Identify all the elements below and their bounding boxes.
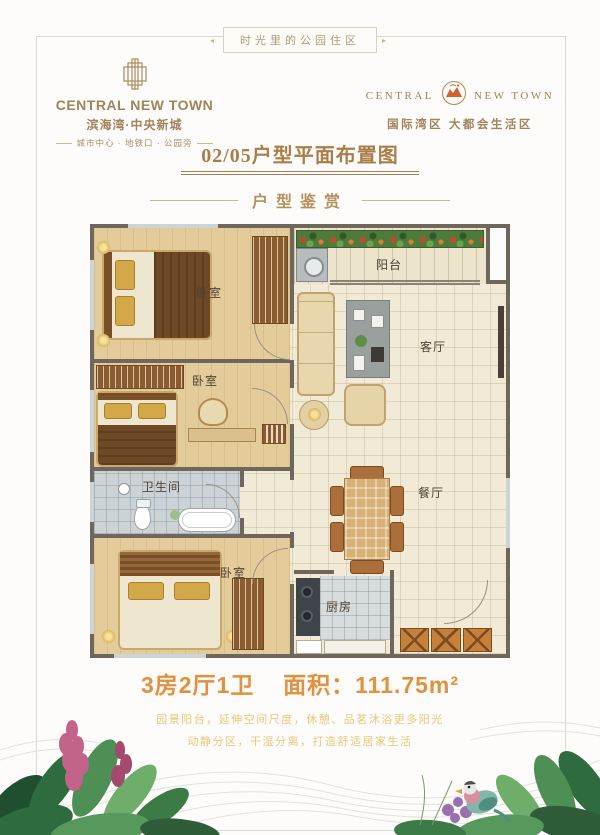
bookshelf <box>262 424 286 444</box>
banner-text: 时光里的公园住区 <box>240 35 360 47</box>
plan-title-block: 02/05户型平面布置图 <box>0 139 600 175</box>
brand-name-en: CENTRAL NEW TOWN <box>52 97 217 113</box>
tv <box>498 306 504 378</box>
plan-notch <box>486 228 506 284</box>
header-line-right <box>362 200 450 201</box>
brand-right-en-left: CENTRAL <box>366 90 434 102</box>
brand-right: CENTRAL NEW TOWN 国际湾区 大都会生活区 <box>365 80 555 132</box>
balcony-plants <box>296 230 484 248</box>
desk-chair <box>198 398 228 426</box>
room-label: 卫生间 <box>142 478 181 495</box>
shoe-cabinet <box>400 628 492 652</box>
brand-right-subtitle: 国际湾区 大都会生活区 <box>365 116 555 132</box>
sliding-door <box>330 280 480 285</box>
dining-chair <box>390 522 404 552</box>
stove <box>296 578 320 636</box>
room-label: 卧室 <box>196 284 222 301</box>
diamond-icon: ▸ <box>382 36 390 45</box>
window <box>114 654 206 658</box>
wall <box>290 584 294 654</box>
floor-plan: 卧室 卧室 卫生间 卧室 阳台 <box>90 224 510 658</box>
coffee-table <box>346 300 390 378</box>
wardrobe <box>96 365 184 389</box>
window <box>90 390 94 452</box>
window <box>128 224 218 228</box>
wardrobe <box>252 236 288 324</box>
wall <box>240 471 244 487</box>
diamond-icon: ◂ <box>210 36 218 45</box>
summary-line: 3房2厅1卫 面积：111.75m² <box>0 666 600 700</box>
brand-left: CENTRAL NEW TOWN 滨海湾·中央新城 城市中心 · 地铁口 · 公… <box>52 58 217 149</box>
wall <box>290 532 294 548</box>
dining-chair <box>330 522 344 552</box>
summary-area-value: 111.75m² <box>355 672 459 698</box>
description-line1: 园景阳台，延伸空间尺度，休憩、品茗沐浴更多阳光 <box>0 711 600 727</box>
wall <box>390 570 394 654</box>
dining-chair <box>390 486 404 516</box>
room-label: 客厅 <box>420 338 446 355</box>
plant-pot <box>170 510 180 520</box>
title-underline <box>181 171 419 175</box>
wall <box>294 570 334 574</box>
wall <box>290 424 294 480</box>
dining-chair <box>330 486 344 516</box>
dining-table <box>344 478 390 560</box>
bed <box>118 550 222 650</box>
room-label: 阳台 <box>376 256 402 273</box>
armchair <box>344 384 386 426</box>
table-lamp <box>308 408 321 421</box>
wall <box>290 360 294 388</box>
room-label: 餐厅 <box>418 484 444 501</box>
description-line2: 动静分区，干湿分离，打造舒适居家生活 <box>0 733 600 749</box>
section-header-text: 户型鉴赏 <box>252 188 348 212</box>
lamp <box>97 334 110 347</box>
lamp <box>97 241 110 254</box>
room-label: 卧室 <box>220 564 246 581</box>
bed <box>96 391 178 467</box>
kitchen-counter <box>324 640 386 654</box>
dining-chair <box>350 560 384 574</box>
plan-title: 02/05户型平面布置图 <box>0 139 600 168</box>
toilet <box>134 504 151 530</box>
summary-spec: 3房2厅1卫 <box>141 672 254 698</box>
brand-name-cn: 滨海湾·中央新城 <box>52 116 217 133</box>
window <box>90 482 94 522</box>
room-label: 卧室 <box>192 372 218 389</box>
kitchen-cabinet <box>296 640 322 654</box>
building-icon <box>52 58 217 95</box>
brand-right-en-right: NEW TOWN <box>474 90 554 102</box>
header-line-left <box>150 200 238 201</box>
wall <box>240 518 244 534</box>
wardrobe <box>232 578 264 650</box>
sofa <box>297 292 335 396</box>
window <box>90 260 94 330</box>
window <box>90 564 94 634</box>
emblem-icon <box>441 80 467 111</box>
section-header: 户型鉴赏 <box>0 188 600 212</box>
lamp <box>102 630 115 643</box>
washing-machine <box>296 248 328 282</box>
desk <box>188 428 256 442</box>
summary-area-label: 面积： <box>283 672 355 698</box>
room-label: 厨房 <box>326 598 352 615</box>
shower-symbol <box>118 483 130 495</box>
window <box>506 478 510 548</box>
top-banner: ◂ 时光里的公园住区 ▸ <box>0 27 600 53</box>
